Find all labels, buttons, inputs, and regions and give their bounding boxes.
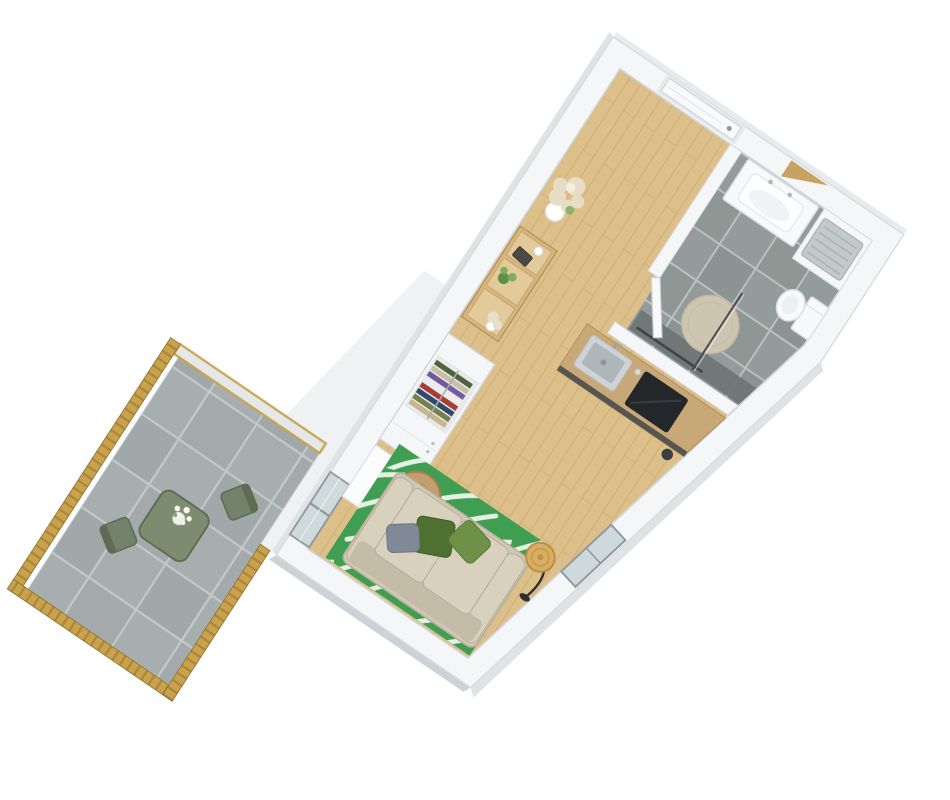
floorplan-render-stage — [0, 0, 950, 800]
apartment-3d-render — [0, 0, 950, 800]
isometric-plan — [7, 0, 912, 800]
bathroom-door — [651, 278, 662, 338]
pillow-gray — [386, 524, 420, 553]
